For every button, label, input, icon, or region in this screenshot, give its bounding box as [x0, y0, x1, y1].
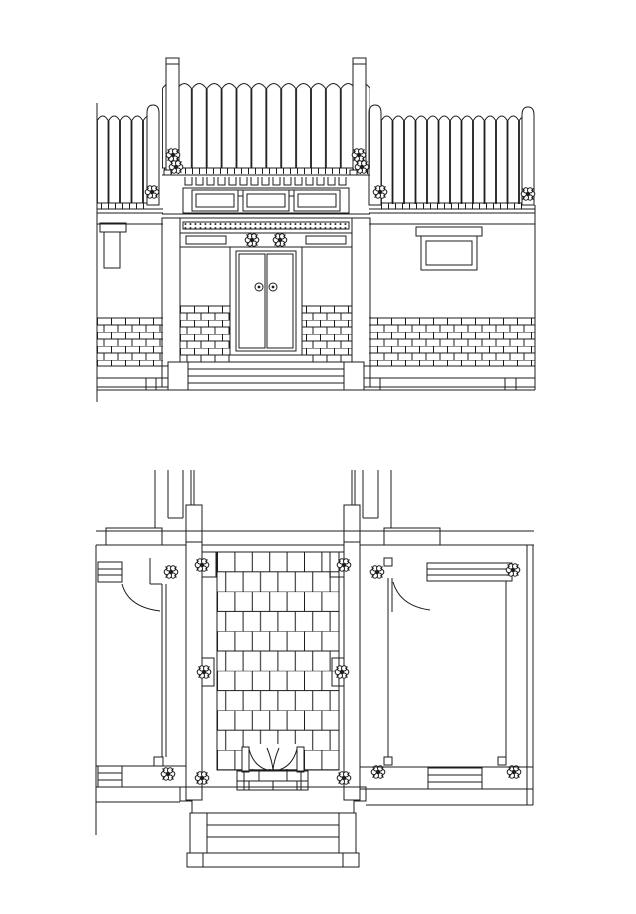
lintel-slot-right	[306, 236, 346, 244]
door-leaf-left	[239, 254, 265, 348]
wall-cap-bottom-left-lines	[98, 773, 122, 780]
plan-north-walls	[96, 470, 534, 545]
plan-step-base	[187, 853, 359, 867]
door-opening	[230, 247, 302, 355]
lintel-slot-left	[186, 236, 226, 244]
gate-south-wall	[180, 787, 366, 813]
dentil-row	[183, 176, 349, 187]
dotted-brick-band	[183, 222, 349, 229]
left-room-step-wall	[150, 558, 162, 584]
entrance-steps	[188, 362, 344, 383]
panel-band	[183, 188, 349, 213]
lintel-ornament-left	[245, 234, 259, 246]
plan-step-base-joints	[203, 853, 343, 867]
door-clearance	[246, 744, 300, 769]
column-flower	[337, 559, 351, 571]
wall-cap-top-left	[98, 562, 122, 582]
panel-2-inner	[247, 194, 285, 207]
plinth-right	[364, 366, 535, 387]
window-lintel	[416, 227, 482, 236]
panel-2	[243, 190, 289, 211]
wall-cap-bottom-left	[98, 766, 122, 787]
right-room-corner-post-top	[384, 558, 392, 566]
step-block-left	[168, 362, 188, 390]
left-room-corner-post	[154, 757, 163, 766]
plan-step-block-right	[339, 813, 356, 853]
right-wall-roof-tiles	[381, 112, 522, 205]
column-flower	[370, 566, 384, 578]
side-ornament-right	[373, 186, 387, 198]
plan-column-flowers	[161, 559, 521, 784]
column-flower	[197, 666, 211, 678]
panel-divider-1	[238, 190, 243, 196]
sill-bottom-right	[428, 768, 482, 789]
lintel-ornament-right	[273, 234, 287, 246]
column-flower	[371, 766, 385, 778]
column-flower	[161, 768, 175, 780]
door-leaf-right	[267, 254, 293, 348]
door-knocker-right	[269, 283, 277, 291]
elevation-view	[97, 58, 535, 402]
plan-view	[96, 470, 534, 867]
plan-step-block-left	[190, 813, 207, 853]
door-post-right	[297, 747, 304, 772]
pier-top-right	[344, 505, 360, 542]
panel-3-inner	[298, 194, 336, 207]
left-wall-roof-tiles	[97, 112, 147, 203]
wall-cap-top-left-lines	[98, 569, 122, 575]
left-wall	[97, 103, 163, 402]
door-swing-left-room	[122, 584, 160, 611]
gate-frieze	[162, 176, 370, 229]
brick-wainscot-left	[97, 318, 163, 366]
door-knocker-left	[255, 283, 263, 291]
lattice-bar-top-right	[427, 563, 512, 581]
plinth-left-joints	[146, 378, 156, 390]
right-eave-drips	[381, 203, 522, 209]
panel-1-inner	[196, 194, 234, 207]
threshold-upper-joints	[259, 771, 287, 781]
elevation-base	[97, 362, 535, 390]
brick-panel-inner-right	[302, 306, 352, 362]
column-flower	[506, 564, 520, 576]
side-ornament-left	[145, 186, 159, 198]
column-flower	[335, 666, 349, 678]
plinth-right-joints	[380, 378, 516, 390]
pier-top-left	[186, 505, 202, 542]
window-pane	[426, 241, 472, 265]
column-flower	[507, 766, 521, 778]
column-flower	[337, 772, 351, 784]
panel-1	[192, 190, 238, 211]
gate-roof-tiles	[162, 78, 370, 168]
plan-step-lines	[207, 825, 339, 837]
right-wall	[369, 105, 535, 390]
panel-divider-2	[289, 190, 294, 196]
frieze-rail	[162, 214, 370, 218]
plan-south	[96, 766, 533, 867]
brick-panel-inner-left	[180, 306, 230, 362]
side-ornament-far-right	[521, 188, 535, 200]
column-flower	[164, 566, 178, 578]
plinth-left	[97, 366, 168, 387]
column-flower	[195, 772, 209, 784]
outer-wall-right	[527, 545, 533, 805]
left-eave-drips	[97, 203, 147, 209]
cad-drawing	[0, 0, 636, 914]
right-room-corner-post-br	[498, 757, 506, 765]
right-room-corner-post-bl	[384, 757, 392, 765]
paving-grid	[217, 552, 339, 770]
brick-wainscot-right	[369, 318, 535, 366]
wall-niche	[104, 232, 120, 268]
right-room-inner-wall-left	[388, 578, 392, 757]
panel-3	[294, 190, 340, 211]
door-post-left	[242, 747, 249, 772]
left-room-inner-wall	[162, 584, 166, 757]
gate-eave-drips	[162, 168, 370, 175]
door-frame	[236, 251, 296, 351]
step-block-right	[344, 362, 364, 390]
column-flower	[195, 559, 209, 571]
plan-paving	[217, 552, 339, 770]
door-swing-right-room	[393, 582, 430, 610]
sill-bottom-right-lines	[428, 775, 482, 782]
lattice-bar-top-right-lines	[427, 569, 512, 575]
drawing-sheet	[0, 0, 636, 914]
door-lintel	[180, 233, 352, 247]
